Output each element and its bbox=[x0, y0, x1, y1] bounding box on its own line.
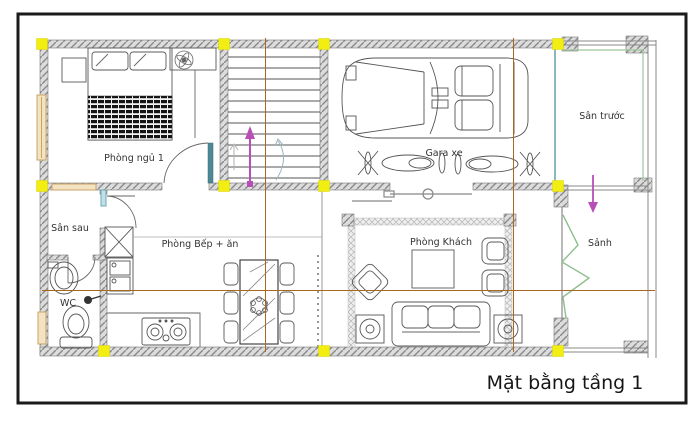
fence-column-4 bbox=[624, 341, 648, 353]
table-top bbox=[240, 260, 278, 344]
column-marker bbox=[219, 181, 230, 192]
label-living-room: Phòng Khách bbox=[410, 237, 472, 248]
label-garage: Gara xe bbox=[425, 148, 462, 159]
fence-column-1 bbox=[562, 37, 578, 51]
wall-middle-stairs bbox=[222, 183, 326, 190]
column-marker bbox=[553, 39, 564, 50]
wall-wc-top-a bbox=[47, 255, 68, 260]
stair-wall-right bbox=[320, 47, 328, 183]
fridge-shaft bbox=[105, 227, 133, 257]
column-marker bbox=[319, 181, 330, 192]
bed-blanket bbox=[88, 96, 172, 140]
rug-border-right bbox=[505, 225, 512, 347]
dining-table bbox=[224, 260, 294, 344]
stair-wall-left bbox=[220, 47, 228, 183]
label-kitchen-dining: Phòng Bếp + ăn bbox=[162, 239, 239, 250]
kitchen-door-jamb bbox=[101, 190, 106, 206]
column-marker bbox=[553, 346, 564, 357]
wall-left bbox=[40, 40, 48, 355]
column-marker bbox=[37, 181, 48, 192]
chair bbox=[224, 292, 238, 314]
label-hall: Sảnh bbox=[588, 238, 612, 249]
wall-middle-c bbox=[326, 183, 390, 190]
stove bbox=[142, 318, 190, 345]
wc-window bbox=[38, 312, 46, 344]
chair bbox=[280, 321, 294, 343]
kitchen-sink bbox=[107, 258, 133, 294]
column-marker bbox=[219, 39, 230, 50]
rug-border-top bbox=[348, 218, 512, 225]
label-bedroom1: Phòng ngủ 1 bbox=[104, 153, 164, 164]
plan-title: Mặt bằng tầng 1 bbox=[487, 371, 644, 394]
living-column-right bbox=[504, 214, 516, 226]
column-marker bbox=[37, 39, 48, 50]
label-wc: WC bbox=[60, 298, 76, 309]
chair bbox=[224, 321, 238, 343]
column-marker bbox=[99, 346, 110, 357]
wall-bottom bbox=[40, 347, 560, 356]
label-back-yard: Sân sau bbox=[51, 223, 89, 234]
chair bbox=[224, 263, 238, 285]
hall-column-bottom bbox=[554, 318, 568, 346]
chair bbox=[280, 263, 294, 285]
column-marker bbox=[319, 39, 330, 50]
wall-top bbox=[40, 40, 560, 48]
living-column-left bbox=[342, 214, 354, 226]
column-marker bbox=[319, 346, 330, 357]
column-marker bbox=[553, 181, 564, 192]
wall-middle-d bbox=[473, 183, 558, 190]
backyard-window bbox=[52, 184, 96, 190]
floor-plan-page: Phòng ngủ 1 Sân sau WC Phòng Bếp + ăn Ga… bbox=[0, 0, 700, 427]
chair bbox=[280, 292, 294, 314]
label-front-yard: Sân trước bbox=[579, 111, 625, 122]
floor-plan-canvas: Phòng ngủ 1 Sân sau WC Phòng Bếp + ăn Ga… bbox=[0, 0, 700, 427]
bedroom-door-leaf bbox=[208, 143, 213, 183]
